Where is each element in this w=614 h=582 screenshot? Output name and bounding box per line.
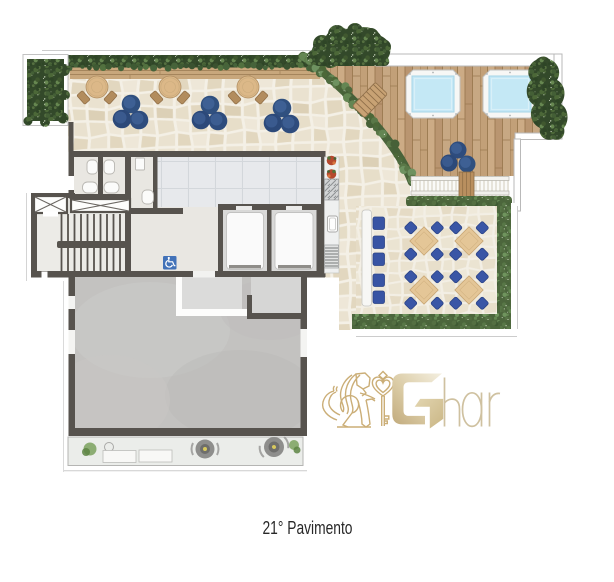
svg-text:21° Pavimento: 21° Pavimento: [263, 517, 353, 538]
